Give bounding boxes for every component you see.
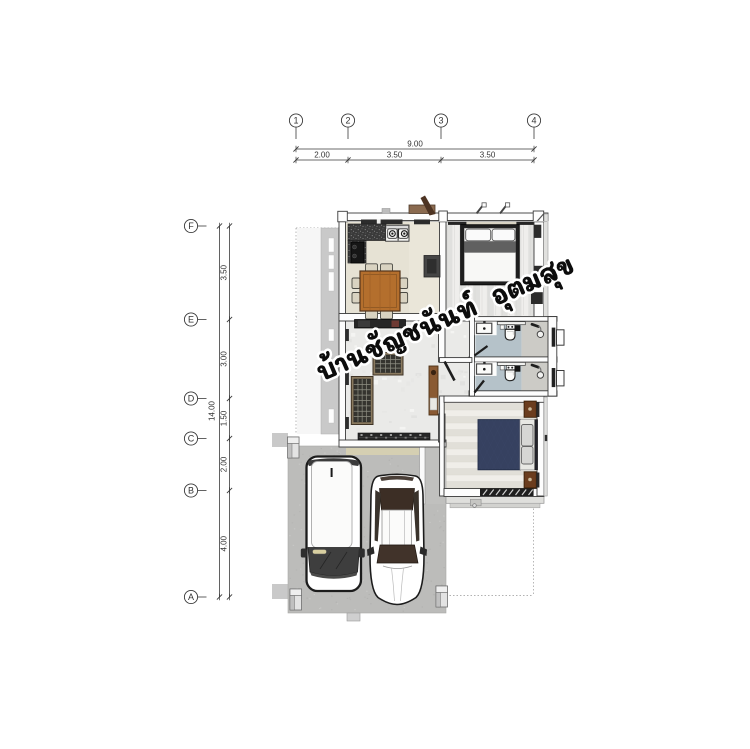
svg-text:3.50: 3.50 <box>387 150 403 159</box>
svg-text:1: 1 <box>293 116 298 126</box>
svg-text:C: C <box>188 434 195 444</box>
svg-text:F: F <box>188 221 194 231</box>
svg-text:3: 3 <box>438 116 443 126</box>
svg-text:E: E <box>188 315 194 325</box>
svg-text:1.50: 1.50 <box>219 410 228 426</box>
svg-text:D: D <box>188 394 195 404</box>
svg-text:2.00: 2.00 <box>219 456 228 472</box>
svg-text:A: A <box>188 592 194 602</box>
svg-text:14.00: 14.00 <box>208 400 217 421</box>
svg-text:3.50: 3.50 <box>219 264 228 280</box>
svg-text:3.50: 3.50 <box>480 150 496 159</box>
svg-text:B: B <box>188 486 194 496</box>
svg-text:2: 2 <box>345 116 350 126</box>
svg-text:9.00: 9.00 <box>407 139 423 148</box>
svg-text:3.00: 3.00 <box>219 351 228 367</box>
svg-text:4.00: 4.00 <box>219 535 228 551</box>
svg-text:4: 4 <box>531 116 536 126</box>
svg-text:2.00: 2.00 <box>314 150 330 159</box>
